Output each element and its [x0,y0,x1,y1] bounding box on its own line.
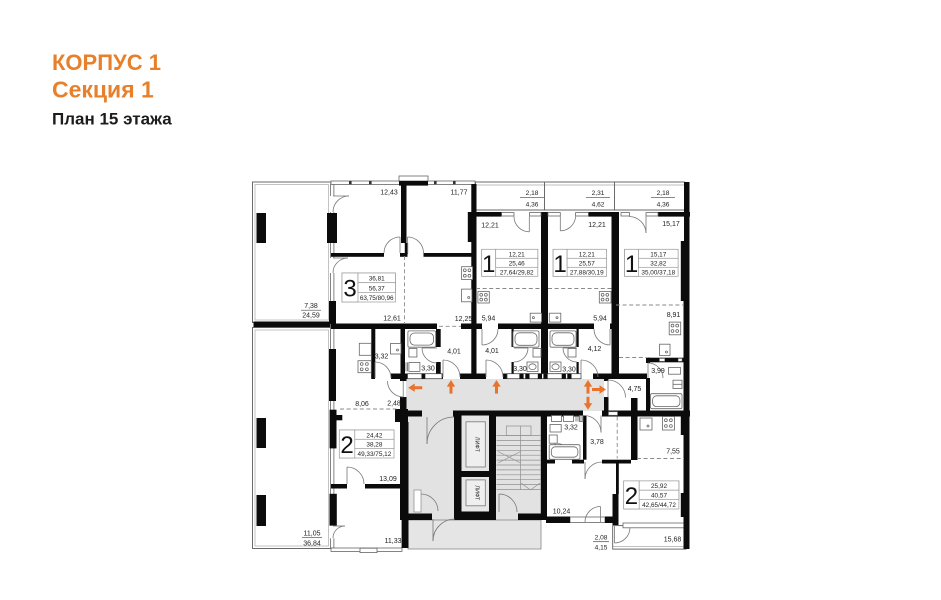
svg-text:Секция 1: Секция 1 [52,77,154,103]
svg-text:5,94: 5,94 [482,316,496,323]
svg-text:24,42: 24,42 [366,432,382,439]
svg-text:42,65/44,72: 42,65/44,72 [642,502,676,509]
svg-text:12,25: 12,25 [455,316,473,323]
svg-text:12,21: 12,21 [588,222,606,229]
svg-text:4,01: 4,01 [447,348,461,355]
svg-text:3,30: 3,30 [421,366,435,373]
svg-text:36,81: 36,81 [369,276,385,283]
svg-text:4,75: 4,75 [628,386,642,393]
svg-text:56,37: 56,37 [369,285,385,292]
svg-text:3,99: 3,99 [651,368,665,375]
svg-text:12,61: 12,61 [383,316,401,323]
svg-text:4,62: 4,62 [592,202,605,209]
svg-text:4,12: 4,12 [588,346,602,353]
svg-text:1: 1 [625,251,638,278]
svg-text:12,21: 12,21 [481,223,499,230]
svg-text:35,00/37,18: 35,00/37,18 [641,269,675,276]
svg-text:1: 1 [482,251,495,278]
svg-text:38,28: 38,28 [366,442,382,449]
svg-text:13,09: 13,09 [379,476,397,483]
svg-text:11,77: 11,77 [451,190,468,197]
svg-text:12,21: 12,21 [579,251,595,258]
svg-text:27,88/30,19: 27,88/30,19 [570,269,604,276]
svg-text:4,36: 4,36 [526,202,539,209]
svg-text:12,43: 12,43 [380,190,398,197]
svg-text:25,46: 25,46 [509,260,525,267]
svg-text:40,57: 40,57 [651,493,667,500]
svg-text:8,06: 8,06 [355,401,369,408]
svg-text:4,15: 4,15 [595,545,608,552]
svg-text:3,30: 3,30 [562,367,576,374]
svg-text:27,64/29,82: 27,64/29,82 [500,269,534,276]
svg-text:2: 2 [340,432,353,459]
svg-text:3,30: 3,30 [513,366,527,373]
svg-text:15,17: 15,17 [662,221,680,228]
svg-text:8,91: 8,91 [667,312,681,319]
svg-text:11,05: 11,05 [304,531,321,538]
svg-text:2,08: 2,08 [595,535,608,542]
svg-text:2,18: 2,18 [657,190,670,197]
svg-text:63,75/80,96: 63,75/80,96 [360,295,394,302]
svg-text:ЛИФТ: ЛИФТ [474,485,480,501]
svg-text:2: 2 [625,483,638,510]
svg-text:План 15 этажа: План 15 этажа [52,110,172,129]
svg-text:10,24: 10,24 [553,508,571,515]
svg-text:3,32: 3,32 [564,425,578,432]
svg-text:1: 1 [553,251,566,278]
svg-text:24,59: 24,59 [302,313,320,320]
svg-text:15,68: 15,68 [664,537,682,544]
svg-text:2,18: 2,18 [526,190,539,197]
svg-text:КОРПУС 1: КОРПУС 1 [52,50,161,75]
svg-text:7,38: 7,38 [304,303,318,310]
svg-text:36,84: 36,84 [303,541,321,548]
svg-text:15,17: 15,17 [650,251,666,258]
svg-text:3,78: 3,78 [590,439,604,446]
svg-text:2,31: 2,31 [592,190,605,197]
svg-text:25,57: 25,57 [579,260,595,267]
svg-text:32,82: 32,82 [650,260,666,267]
svg-text:11,33: 11,33 [385,538,402,545]
svg-text:4,01: 4,01 [485,348,499,355]
svg-text:3,32: 3,32 [375,353,389,360]
svg-text:49,33/75,12: 49,33/75,12 [358,451,392,458]
svg-text:3: 3 [343,276,356,303]
svg-text:5,94: 5,94 [593,316,607,323]
svg-text:ЛИФТ: ЛИФТ [474,437,480,453]
svg-text:12,21: 12,21 [509,251,525,258]
svg-text:25,92: 25,92 [651,483,667,490]
svg-text:4,36: 4,36 [657,202,670,209]
svg-text:2,48: 2,48 [387,401,401,408]
svg-text:7,55: 7,55 [666,449,680,456]
